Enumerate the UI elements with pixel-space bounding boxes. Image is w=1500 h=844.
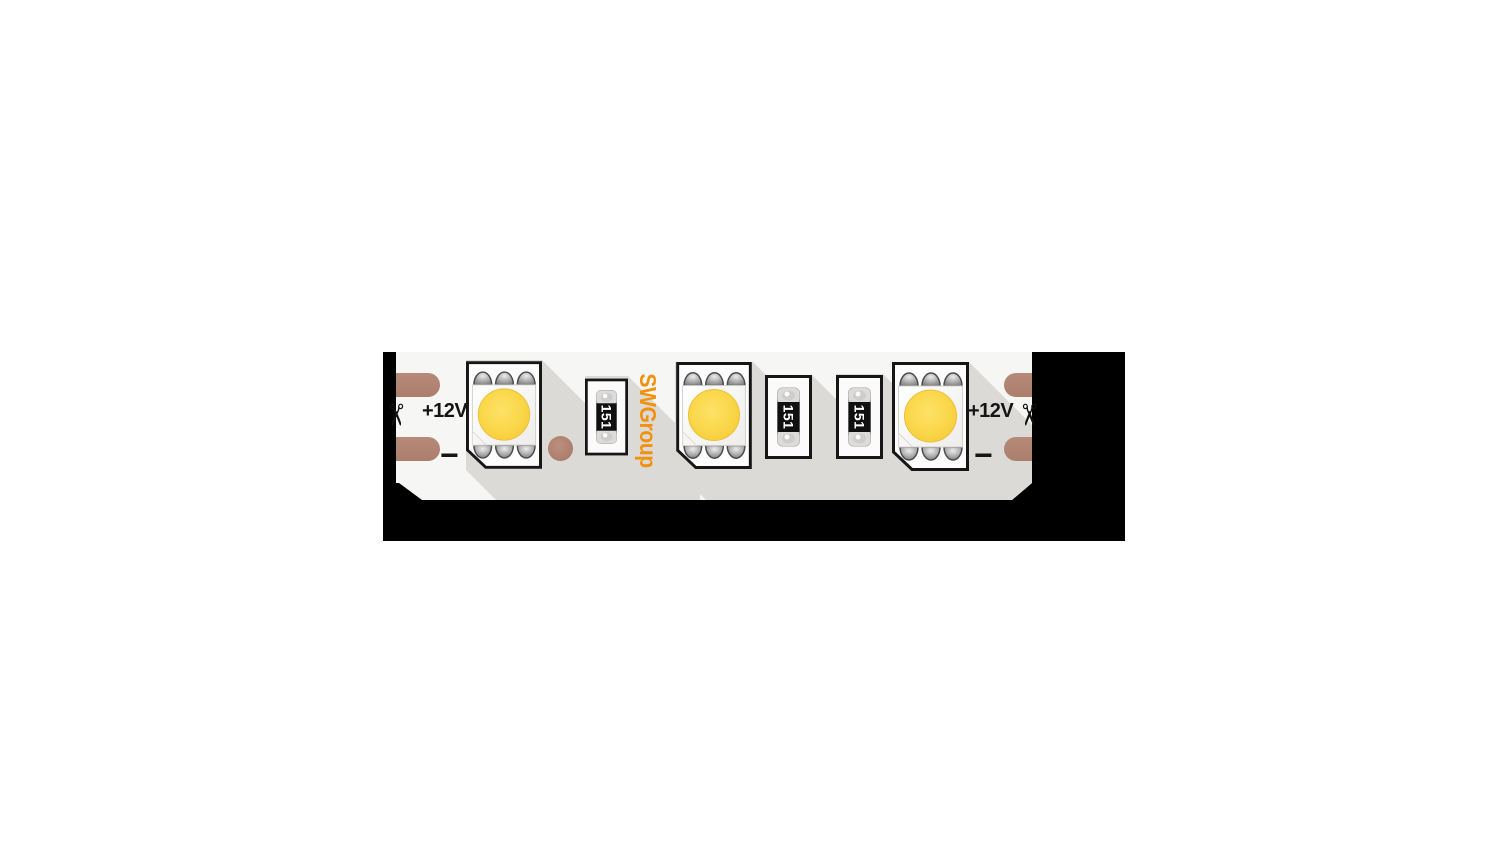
resistor-code-text: 151 [851, 405, 867, 430]
resistor-code-2: 151 [765, 375, 812, 459]
voltage-label-left: +12V [422, 401, 467, 421]
led-module-3 [892, 362, 969, 471]
resistor-code-1: 151 [585, 376, 628, 458]
negative-label-right: − [974, 440, 993, 470]
solder-pad-positive-right [1004, 373, 1032, 397]
solder-via [548, 436, 573, 461]
solder-pad-negative-right [1004, 437, 1032, 461]
led-strip: +12V +12V − − SWGroup 151 151 151 [396, 352, 1032, 500]
scissors-glyph: ✂ [380, 402, 410, 427]
solder-pad-positive-left [396, 373, 440, 397]
resistor-code-text: 151 [780, 405, 796, 430]
scissors-glyph: ✂ [1017, 402, 1047, 427]
negative-label-left: − [440, 440, 459, 470]
brand-logo: SWGroup [633, 373, 661, 467]
led-module-2 [675, 362, 753, 469]
resistor-code-3: 151 [836, 374, 883, 460]
led-module-1 [466, 360, 542, 470]
scissors-icon: ✂ [377, 399, 413, 431]
voltage-label-right: +12V [968, 401, 1013, 421]
page-background: +12V +12V − − SWGroup 151 151 151 ✂ ✂ [0, 0, 1500, 844]
resistor-code-text: 151 [598, 405, 614, 430]
solder-pad-negative-left [396, 437, 440, 461]
brand-logo-text: SWGroup [634, 373, 661, 467]
scissors-icon: ✂ [1014, 399, 1050, 431]
